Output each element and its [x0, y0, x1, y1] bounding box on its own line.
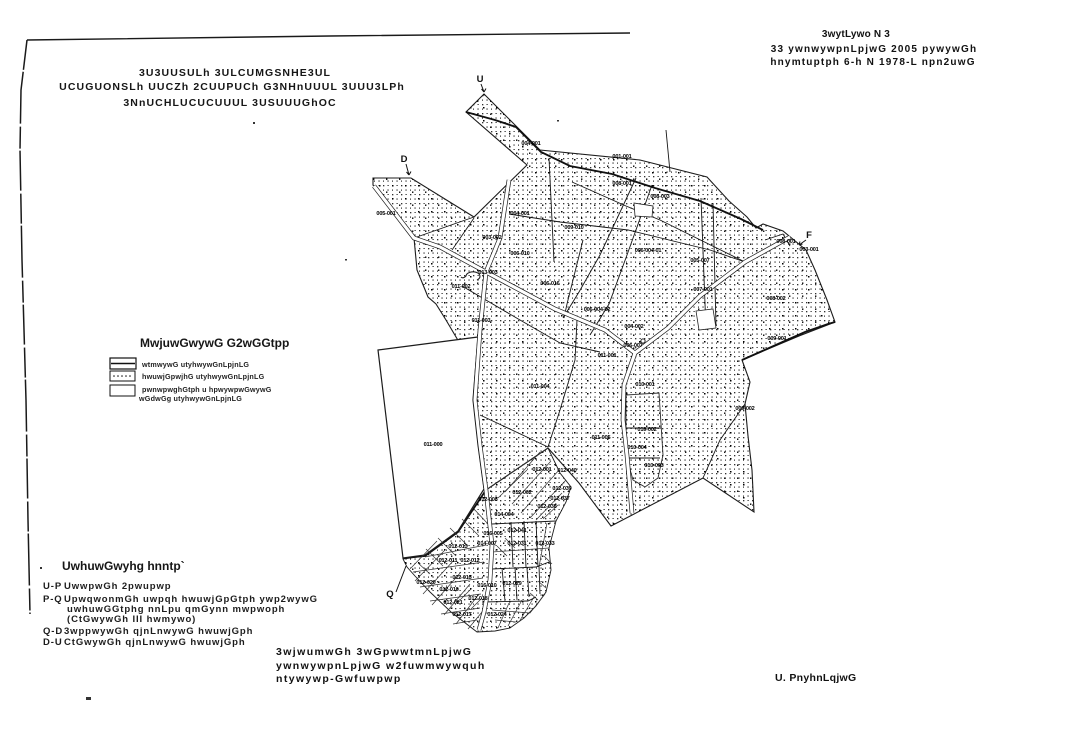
svg-text:012-029: 012-029 [502, 581, 521, 587]
svg-text:012-021: 012-021 [443, 600, 462, 606]
svg-text:012-039: 012-039 [552, 486, 571, 492]
svg-text:012-011: 012-011 [439, 558, 458, 564]
svg-text:004-002: 004-002 [624, 324, 643, 330]
svg-text:3wjwumwGh 3wGpwwtmnLpjwG: 3wjwumwGh 3wGpwwtmnLpjwG [276, 646, 472, 658]
svg-text:016-010: 016-010 [477, 583, 496, 589]
svg-text:012-040: 012-040 [557, 468, 576, 474]
svg-text:012-013: 012-013 [448, 544, 467, 550]
svg-text:012-008: 012-008 [478, 497, 497, 503]
svg-text:005-007: 005-007 [690, 258, 709, 264]
svg-text:006-004-02: 006-004-02 [584, 307, 611, 313]
svg-text:006-016: 006-016 [540, 281, 559, 287]
svg-text:U-P: U-P [43, 581, 62, 592]
svg-text:011-005: 011-005 [592, 435, 611, 441]
svg-text:008-002: 008-002 [766, 296, 785, 302]
svg-text:012-017: 012-017 [452, 612, 471, 618]
svg-text:004-001: 004-001 [510, 211, 529, 217]
svg-text:hnymtuptph 6-h N 1978-L npn2uw: hnymtuptph 6-h N 1978-L npn2uwG [770, 57, 975, 68]
svg-text:012-016: 012-016 [439, 587, 458, 593]
svg-text:ywnwywpnLpjwG w2fuwmwywquh: ywnwywpnLpjwG w2fuwmwywquh [276, 660, 486, 672]
svg-text:003-002: 003-002 [482, 235, 501, 241]
svg-text:001-001: 001-001 [612, 154, 631, 160]
svg-text:010-003: 010-003 [644, 463, 663, 469]
svg-text:3NnUCHLUCUCUUUL 3USUUUGhOC: 3NnUCHLUCUCUUUL 3USUUUGhOC [123, 97, 336, 109]
svg-text:ntywywp-Gwfuwpwp: ntywywp-Gwfuwpwp [276, 673, 402, 685]
svg-text:010-004: 010-004 [627, 445, 647, 451]
svg-text:012-020: 012-020 [416, 580, 435, 586]
svg-text:wtmwywG utyhwywGnLpjnLG: wtmwywG utyhwywGnLpjnLG [141, 360, 249, 369]
svg-text:012-031: 012-031 [507, 541, 526, 547]
svg-text:UCUGUONSLh UUCZh 2CUUPUCh G3NH: UCUGUONSLh UUCZh 2CUUPUCh G3NHnUUUL 3UUU… [59, 81, 405, 93]
svg-text:F: F [806, 230, 812, 241]
svg-text:D-U: D-U [43, 637, 63, 648]
svg-text:012-038: 012-038 [537, 504, 556, 510]
svg-text:011-001: 011-001 [598, 353, 617, 359]
svg-text:3wppwywGh qjnLnwywG hwuwjGph: 3wppwywGh qjnLnwywG hwuwjGph [64, 626, 253, 637]
svg-text:004-001: 004-001 [521, 141, 540, 147]
svg-text:006-004-01: 006-004-01 [635, 248, 662, 254]
svg-text:3wytLywo N 3: 3wytLywo N 3 [822, 29, 890, 40]
svg-text:010-001: 010-001 [635, 382, 654, 388]
svg-text:P-Q: P-Q [43, 594, 63, 605]
svg-text:wGdwGg utyhwywGnLpjnLG: wGdwGg utyhwywGnLpjnLG [138, 394, 242, 403]
svg-text:008-001: 008-001 [776, 239, 795, 245]
svg-text:012-012: 012-012 [460, 558, 479, 564]
svg-text:012-041: 012-041 [507, 528, 526, 534]
svg-text:011-002: 011-002 [452, 284, 471, 290]
svg-text:U: U [477, 74, 484, 85]
svg-text:009-001: 009-001 [767, 336, 786, 342]
svg-text:014-007: 014-007 [477, 541, 496, 547]
svg-text:012-033: 012-033 [535, 541, 554, 547]
svg-text:012-018: 012-018 [468, 596, 487, 602]
svg-text:012-001: 012-001 [532, 467, 551, 473]
svg-text:009-010: 009-010 [564, 225, 583, 231]
svg-text:33 ywnwywpnLpjwG 2005 pywywGh: 33 ywnwywpnLpjwG 2005 pywywGh [771, 44, 978, 55]
svg-text:012-024: 012-024 [487, 612, 507, 618]
svg-text:008-001: 008-001 [612, 181, 631, 187]
svg-text:016-005: 016-005 [483, 531, 502, 537]
svg-text:007-001: 007-001 [693, 287, 712, 293]
svg-text:UwwpwGh 2pwupwp: UwwpwGh 2pwupwp [64, 581, 171, 592]
svg-text:3U3UUSULh 3ULCUMGSNHE3UL: 3U3UUSULh 3ULCUMGSNHE3UL [139, 67, 331, 79]
svg-text:Q-D: Q-D [43, 626, 63, 637]
svg-text:012-015: 012-015 [452, 575, 471, 581]
svg-text:011-004: 011-004 [531, 384, 551, 390]
svg-text:CtGwywGh qjnLnwywG hwuwjGph: CtGwywGh qjnLnwywG hwuwjGph [64, 637, 246, 648]
svg-text:005-001: 005-001 [376, 211, 395, 217]
svg-text:014-004: 014-004 [494, 512, 514, 518]
svg-text:003-001: 003-001 [799, 247, 818, 253]
svg-text:006-010: 006-010 [510, 251, 529, 257]
svg-text:012-002: 012-002 [512, 490, 531, 496]
svg-text:011-003: 011-003 [472, 318, 491, 324]
svg-text:(CtGwywGh III hwmywo): (CtGwywGh III hwmywo) [67, 614, 196, 625]
svg-text:Q: Q [386, 589, 393, 600]
svg-text:009-002: 009-002 [735, 406, 754, 412]
svg-text:pwnwpwghGtph u hpwywpwGwywG: pwnwpwghGtph u hpwywpwGwywG [142, 385, 272, 394]
svg-text:MwjuwGwywG G2wGGtpp: MwjuwGwywG G2wGGtpp [140, 336, 289, 350]
svg-text:UwhuwGwyhg hnntp`: UwhuwGwyhg hnntp` [62, 559, 185, 573]
svg-text:008-003: 008-003 [650, 194, 669, 200]
svg-text:D: D [401, 154, 408, 165]
svg-text:hwuwjGpwjhG utyhwywGnLpjnLG: hwuwjGpwjhG utyhwywGnLpjnLG [142, 372, 265, 381]
svg-text:013-003: 013-003 [478, 270, 497, 276]
svg-text:012-037: 012-037 [550, 496, 569, 502]
svg-text:010-002: 010-002 [637, 427, 656, 433]
svg-text:U. PnyhnLqjwG: U. PnyhnLqjwG [775, 672, 856, 684]
svg-text:011-000: 011-000 [424, 442, 443, 448]
svg-text:006-007: 006-007 [623, 343, 642, 349]
